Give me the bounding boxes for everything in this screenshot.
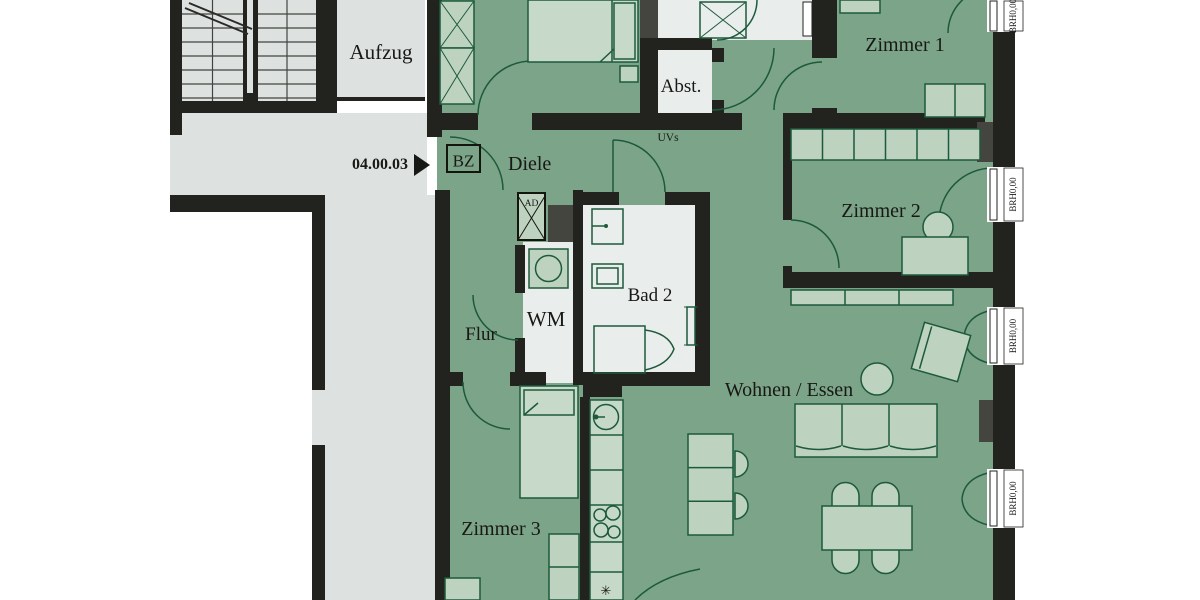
room-label-wohnen-essen: Wohnen / Essen [725,379,853,401]
window-3: BRH0,00 [987,307,1023,365]
wall [812,0,837,58]
area-bath-top [658,0,812,40]
wall [532,113,742,130]
kitchen-island [688,434,733,535]
shaft [640,0,658,38]
wall [583,380,622,397]
wall [783,272,1013,288]
room-label-aufzug: Aufzug [350,40,413,64]
wall [580,397,590,600]
window-sill-label: BRH0,00 [1008,177,1018,212]
wall-pier [979,400,993,442]
window-2: BRH0,00 [987,167,1023,222]
side-table [861,363,893,395]
room-label-abst: Abst. [661,76,702,97]
dining-chair [872,483,899,509]
wall [573,192,619,205]
door-leaf [803,2,812,36]
wall [312,445,325,600]
room-label-bad2: Bad 2 [628,285,673,306]
stair-eye-slot [247,0,253,93]
wall-elevator-door [337,97,425,101]
bed-pillow [524,390,574,415]
wall [712,48,724,62]
wall [515,245,525,293]
wall [170,101,337,113]
dishwasher-symbol: ✳ [601,584,612,599]
window-1: BRH0,00 [987,0,1023,33]
window-frame [990,1,997,31]
floor-plan-drawing: BRH0,00 BRH0,00 BRH0,00 BRH0,00 Aufzug 0… [0,0,1200,600]
unit-number-label: 04.00.03 [352,156,408,173]
wall [435,190,450,600]
bed-cover-edge [614,3,635,59]
window-frame [990,169,997,220]
wall [665,192,710,205]
room-label-zimmer2: Zimmer 2 [841,200,920,222]
sink-tap-dot [594,415,599,420]
wall [170,195,325,212]
nightstand [620,66,638,82]
ad-label: AD [525,199,539,209]
room-label-wm: WM [527,307,566,331]
room-label-zimmer1: Zimmer 1 [865,34,944,56]
window-sill-label: BRH0,00 [1008,318,1018,353]
wall [712,100,724,115]
area-corridor [312,195,435,600]
window-sill-label: BRH0,00 [1008,481,1018,516]
dining-chair [872,548,899,574]
wall [312,212,325,390]
window-sill-label: BRH0,00 [1008,0,1018,33]
wall [515,338,525,383]
dining-chair [832,483,859,509]
dining-table [822,506,912,550]
room-label-diele: Diele [508,153,551,175]
desk-zimmer2 [902,237,968,275]
bz-label: BZ [453,152,475,171]
wall [316,0,337,113]
sink-tap-dot [604,224,608,228]
shelf-zimmer1 [840,0,880,13]
shaft [548,205,573,242]
room-label-zimmer3: Zimmer 3 [461,518,540,540]
area-landing [170,113,427,195]
wall [450,372,463,386]
window-frame [990,309,997,363]
wall [695,205,710,380]
dresser-zimmer3 [445,578,480,600]
dining-chair [832,548,859,574]
sideboard-wohnen [791,290,953,305]
toilet-bowl [597,268,618,284]
window-4: BRH0,00 [987,469,1023,528]
floor-plan: BRH0,00 BRH0,00 BRH0,00 BRH0,00 Aufzug 0… [0,0,1200,600]
uvs-label: UVs [657,132,679,144]
wall [658,38,712,50]
wall [442,113,478,130]
window-frame [990,471,997,526]
wall [640,38,658,115]
wall [573,190,583,385]
room-label-flur: Flur [465,324,497,345]
wall [170,0,182,135]
